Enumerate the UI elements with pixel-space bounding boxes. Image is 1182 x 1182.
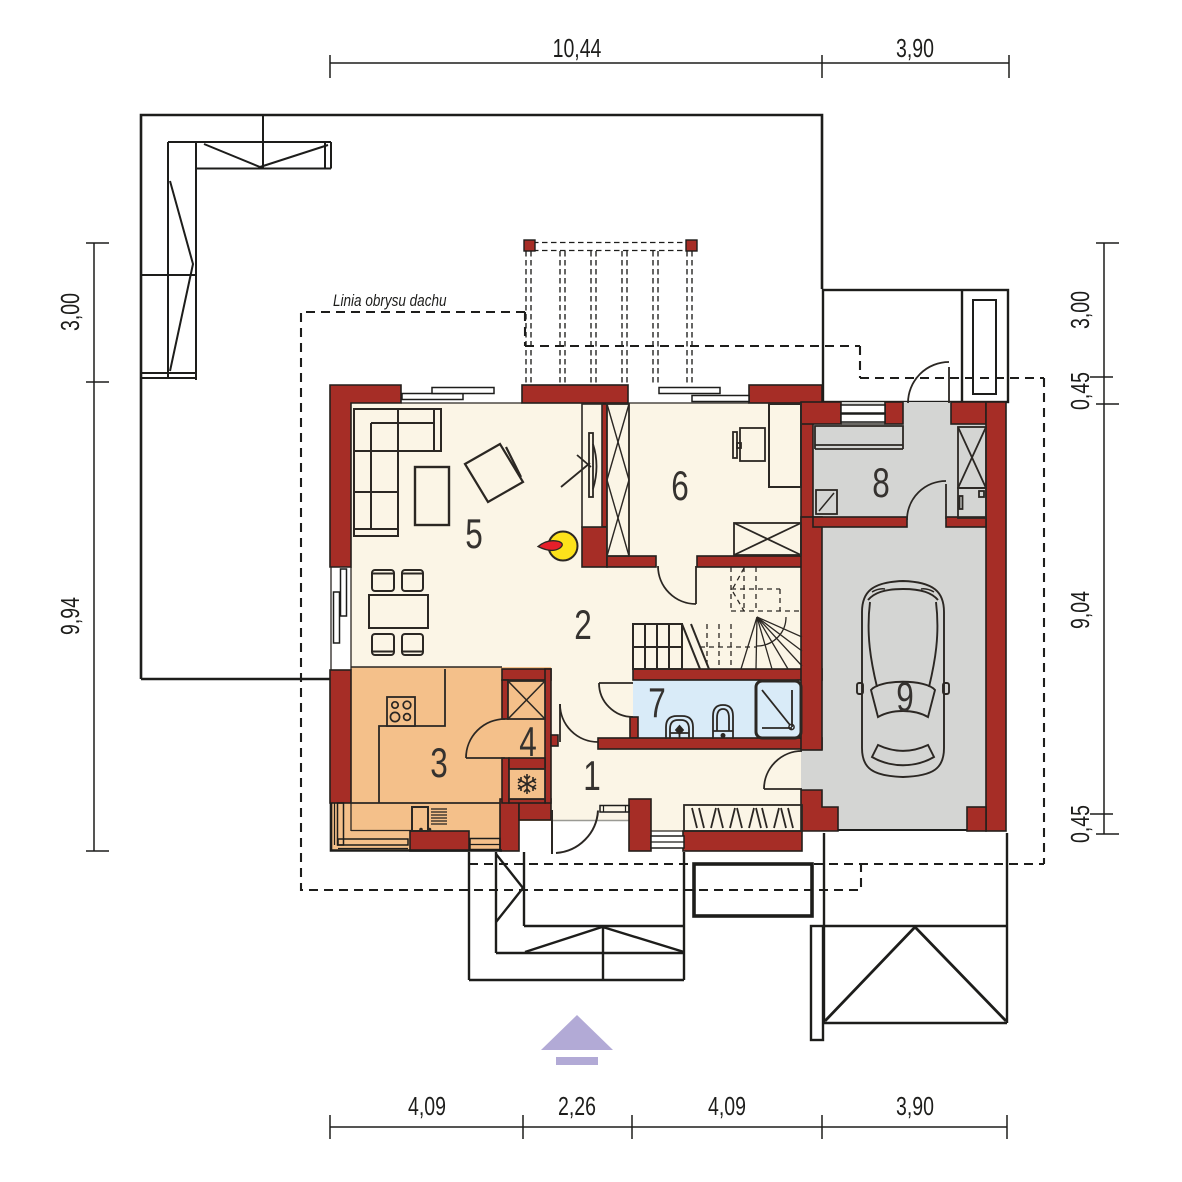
- svg-text:9,94: 9,94: [55, 597, 84, 635]
- svg-text:1: 1: [583, 752, 601, 800]
- svg-text:3,00: 3,00: [55, 293, 84, 331]
- svg-text:3,00: 3,00: [1065, 291, 1094, 329]
- svg-text:4: 4: [519, 718, 537, 766]
- svg-text:9: 9: [896, 673, 914, 721]
- svg-text:5: 5: [465, 510, 483, 558]
- svg-text:9,04: 9,04: [1065, 591, 1094, 629]
- svg-text:2: 2: [574, 601, 592, 649]
- svg-text:3: 3: [430, 739, 448, 787]
- svg-text:6: 6: [671, 462, 689, 510]
- svg-text:4,09: 4,09: [408, 1091, 446, 1120]
- svg-text:10,44: 10,44: [553, 33, 602, 62]
- svg-text:7: 7: [648, 679, 666, 727]
- svg-text:2,26: 2,26: [558, 1091, 596, 1120]
- svg-text:3,90: 3,90: [896, 1091, 934, 1120]
- svg-text:0,45: 0,45: [1065, 805, 1094, 843]
- svg-text:3,90: 3,90: [896, 33, 934, 62]
- svg-text:0,45: 0,45: [1065, 372, 1094, 410]
- svg-text:8: 8: [872, 459, 890, 507]
- svg-text:4,09: 4,09: [708, 1091, 746, 1120]
- svg-text:Linia obrysu dachu: Linia obrysu dachu: [333, 292, 447, 311]
